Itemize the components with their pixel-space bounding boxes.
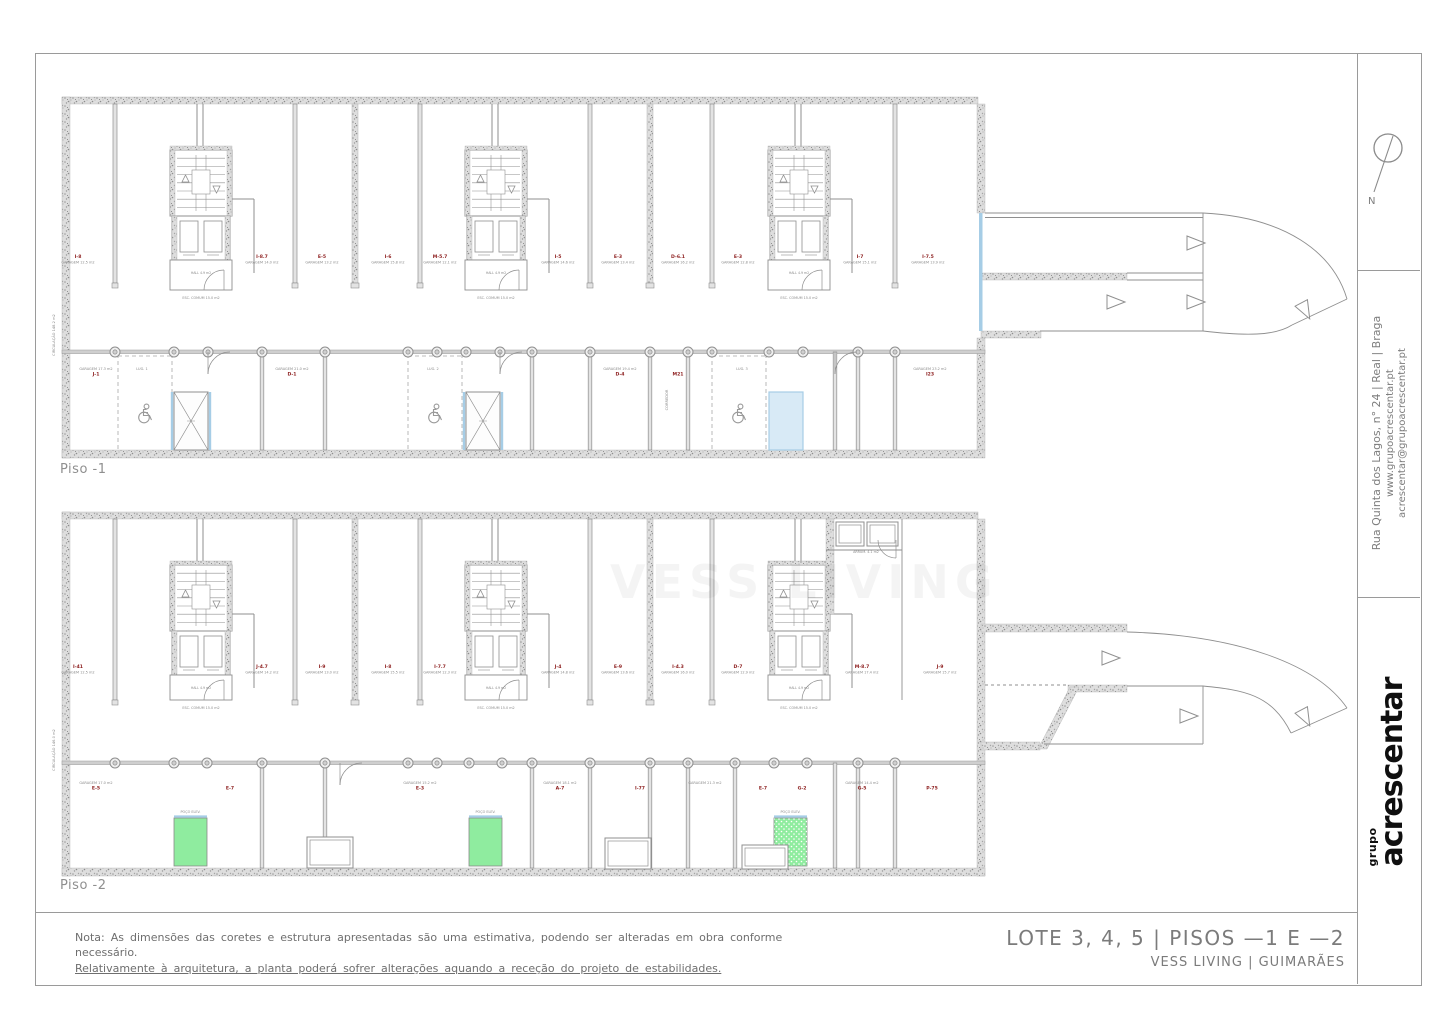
company-logo: grupo acrescentar — [1366, 678, 1410, 867]
sheet-title: LOTE 3, 4, 5 | PISOS —1 E —2 — [995, 926, 1345, 950]
piso-1-label: Piso -1 — [60, 462, 107, 477]
drawing-sheet: HALL 4.9 m2ESC. COMUM 15.0 m2HALL 4.9 m2… — [0, 0, 1449, 1024]
website: www.grupoacrescentar.pt — [1385, 268, 1396, 598]
piso-2-label: Piso -2 — [60, 878, 107, 893]
sheet-subtitle: VESS LIVING | GUIMARÃES — [995, 955, 1345, 970]
north-arrow-icon: N — [1357, 100, 1420, 230]
watermark: VESS LIVING — [610, 555, 999, 609]
title-block: LOTE 3, 4, 5 | PISOS —1 E —2 VESS LIVING… — [995, 926, 1345, 970]
email: acrescentar@grupoacrescentar.pt — [1397, 268, 1408, 598]
sidebar-address: Rua Quinta dos Lagos, n° 24 | Real | Bra… — [1370, 268, 1408, 598]
sheet-border — [35, 53, 1422, 986]
note-line-1: Nota: As dimensões das coretes e estrutu… — [75, 930, 795, 945]
note-block: Nota: As dimensões das coretes e estrutu… — [75, 930, 795, 976]
north-letter: N — [1368, 196, 1375, 207]
logo-main-text: acrescentar — [1375, 678, 1410, 867]
address-line: Rua Quinta dos Lagos, n° 24 | Real | Bra… — [1370, 268, 1383, 598]
note-line-3: Relativamente à arquitetura, a planta po… — [75, 961, 795, 976]
titleblock-divider — [35, 912, 1357, 913]
note-line-2: necessário. — [75, 945, 795, 960]
